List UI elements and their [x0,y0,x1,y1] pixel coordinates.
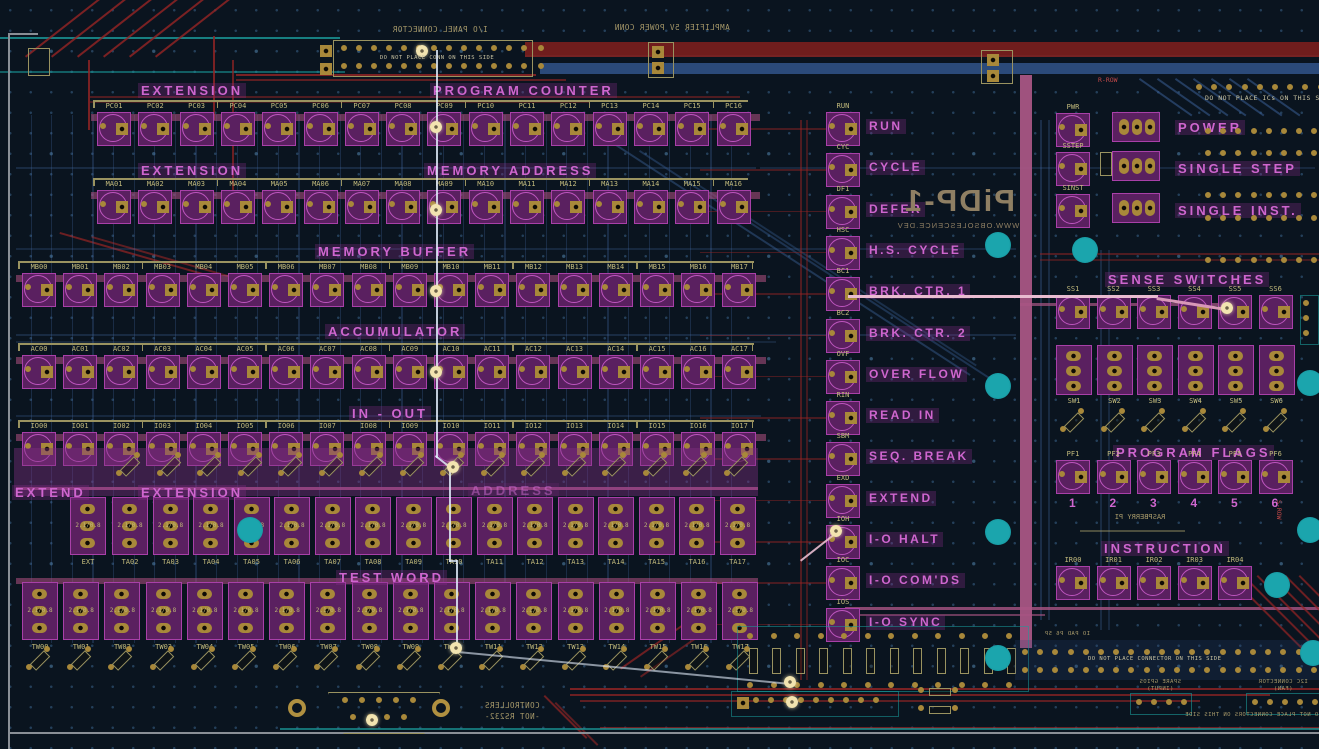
pin-pad[interactable] [1267,699,1273,705]
pin-pad[interactable] [1205,215,1211,221]
pin-pad[interactable] [1311,128,1317,134]
copper-trace[interactable] [700,624,826,626]
pcb-editor-canvas[interactable]: PC01PC02PC03PC04PC05PC06PC07PC08PC09PC10… [0,0,1319,749]
copper-trace[interactable] [700,293,826,295]
pin-pad[interactable] [1220,667,1226,673]
copper-trace[interactable] [16,167,756,169]
highlighted-pad[interactable] [430,121,442,133]
plated-hole[interactable] [1297,370,1319,396]
pin-pad[interactable] [813,697,819,703]
pin-pad[interactable] [841,682,847,688]
switch-pad[interactable] [365,538,380,548]
led-pad[interactable] [307,201,313,207]
switch-pad[interactable] [1269,381,1284,391]
led-pad[interactable] [41,366,53,378]
switch-pad[interactable] [568,504,583,514]
pin-pad[interactable] [1297,699,1303,705]
led-pad[interactable] [637,123,643,129]
led-pad[interactable] [845,123,857,135]
led-pad[interactable] [1059,577,1065,583]
switch-pad[interactable] [1119,158,1129,174]
copper-trace[interactable] [525,55,1319,57]
switch-pad[interactable] [1066,381,1081,391]
led-pad[interactable] [653,201,665,213]
switch-pad[interactable] [650,623,665,633]
led-pad[interactable] [845,453,857,465]
led-pad[interactable] [412,284,424,296]
pin-pad[interactable] [771,633,777,639]
pin-pad[interactable] [1250,667,1256,673]
pin-pad[interactable] [818,633,824,639]
switch-pad[interactable] [320,623,335,633]
led-pad[interactable] [1181,577,1187,583]
led-pad[interactable] [1181,471,1187,477]
led-pad[interactable] [190,284,196,290]
pin-pad[interactable] [1311,192,1317,198]
copper-trace[interactable] [8,732,1319,734]
highlighted-pad[interactable] [430,285,442,297]
led-pad[interactable] [412,366,424,378]
led-pad[interactable] [405,123,417,135]
switch-pad[interactable] [73,589,88,599]
switch-pad[interactable] [325,538,340,548]
led-pad[interactable] [446,123,458,135]
copper-trace[interactable] [51,0,147,58]
led-pad[interactable] [1140,306,1146,312]
led-pad[interactable] [720,201,726,207]
switch-pad[interactable] [197,589,212,599]
copper-trace[interactable] [700,417,826,419]
pin-pad[interactable] [393,697,399,703]
led-pad[interactable] [206,366,218,378]
pin-pad[interactable] [737,697,749,709]
pin-pad[interactable] [410,697,416,703]
led-pad[interactable] [247,366,259,378]
plated-hole[interactable] [237,517,263,543]
pin-pad[interactable] [1287,84,1293,90]
copper-trace[interactable] [845,607,1319,610]
pin-pad[interactable] [342,697,348,703]
pin-pad[interactable] [1220,150,1226,156]
copper-trace[interactable] [848,295,1158,298]
switch-pad[interactable] [1107,351,1122,361]
pin-pad[interactable] [768,697,774,703]
led-pad[interactable] [446,201,458,213]
pin-pad[interactable] [918,687,924,693]
pin-pad[interactable] [987,54,999,66]
pin-pad[interactable] [747,633,753,639]
switch-pad[interactable] [1188,351,1203,361]
switch-pad[interactable] [1269,366,1284,376]
connector-outline[interactable] [731,691,899,717]
highlighted-pad[interactable] [784,676,796,688]
led-pad[interactable] [700,366,712,378]
plated-hole[interactable] [1297,517,1319,543]
led-pad[interactable] [157,123,169,135]
pin-pad[interactable] [982,682,988,688]
led-pad[interactable] [845,247,857,259]
pin-pad[interactable] [1235,667,1241,673]
switch-pad[interactable] [80,538,95,548]
led-pad[interactable] [288,366,300,378]
pin-pad[interactable] [1257,84,1263,90]
switch-pad[interactable] [485,589,500,599]
switch-pad[interactable] [1145,200,1155,216]
switch-pad[interactable] [1119,119,1129,135]
led-pad[interactable] [1075,163,1087,175]
led-pad[interactable] [183,123,189,129]
led-pad[interactable] [1221,471,1227,477]
pin-pad[interactable] [1281,257,1287,263]
led-pad[interactable] [307,123,313,129]
led-pad[interactable] [329,366,341,378]
led-pad[interactable] [829,123,835,129]
pin-pad[interactable] [506,45,512,51]
led-pad[interactable] [1075,471,1087,483]
pin-pad[interactable] [384,714,390,720]
switch-pad[interactable] [114,589,129,599]
led-pad[interactable] [82,284,94,296]
led-pad[interactable] [240,201,252,213]
led-pad[interactable] [653,123,665,135]
switch-pad[interactable] [568,538,583,548]
pin-pad[interactable] [1174,649,1180,655]
led-pad[interactable] [240,123,252,135]
switch-pad[interactable] [689,504,704,514]
led-pad[interactable] [596,201,602,207]
switch-pad[interactable] [73,623,88,633]
led-pad[interactable] [529,201,541,213]
switch-pad[interactable] [1145,119,1155,135]
led-pad[interactable] [1100,306,1106,312]
pin-pad[interactable] [1166,699,1172,705]
led-pad[interactable] [348,201,354,207]
led-pad[interactable] [100,123,106,129]
pin-pad[interactable] [987,70,999,82]
pin-pad[interactable] [798,697,804,703]
switch-pad[interactable] [80,504,95,514]
led-pad[interactable] [596,123,602,129]
plated-hole[interactable] [1264,572,1290,598]
pin-pad[interactable] [1281,128,1287,134]
highlighted-pad[interactable] [1221,302,1233,314]
led-pad[interactable] [513,201,519,207]
pin-pad[interactable] [1296,667,1302,673]
led-pad[interactable] [602,284,608,290]
led-pad[interactable] [659,284,671,296]
pin-pad[interactable] [1251,257,1257,263]
switch-pad[interactable] [284,538,299,548]
led-pad[interactable] [396,366,402,372]
led-pad[interactable] [577,366,589,378]
led-pad[interactable] [355,284,361,290]
pin-pad[interactable] [888,633,894,639]
led-pad[interactable] [1116,306,1128,318]
switch-pad[interactable] [406,538,421,548]
pin-pad[interactable] [912,682,918,688]
pin-pad[interactable] [1251,192,1257,198]
pin-pad[interactable] [652,62,664,74]
led-pad[interactable] [1059,471,1065,477]
switch-pad[interactable] [1228,351,1243,361]
switch-pad[interactable] [403,623,418,633]
switch-pad[interactable] [362,589,377,599]
pin-pad[interactable] [1205,257,1211,263]
pin-pad[interactable] [341,63,347,69]
pin-pad[interactable] [371,45,377,51]
pin-pad[interactable] [1296,192,1302,198]
led-pad[interactable] [123,284,135,296]
pin-pad[interactable] [1296,257,1302,263]
pin-pad[interactable] [818,682,824,688]
led-pad[interactable] [1100,471,1106,477]
pin-pad[interactable] [1303,300,1309,306]
led-pad[interactable] [1075,306,1087,318]
pin-pad[interactable] [1226,84,1232,90]
led-pad[interactable] [618,366,630,378]
led-pad[interactable] [488,123,500,135]
switch-pad[interactable] [691,623,706,633]
led-pad[interactable] [1075,205,1087,217]
copper-trace[interactable] [8,33,10,749]
led-pad[interactable] [396,284,402,290]
copper-trace[interactable] [525,42,1319,55]
switch-pad[interactable] [568,589,583,599]
led-pad[interactable] [348,123,354,129]
pin-pad[interactable] [1068,649,1074,655]
pin-pad[interactable] [1205,150,1211,156]
led-pad[interactable] [845,330,857,342]
led-pad[interactable] [371,366,383,378]
pin-pad[interactable] [873,697,879,703]
switch-pad[interactable] [527,504,542,514]
pin-pad[interactable] [1251,215,1257,221]
pin-pad[interactable] [476,45,482,51]
led-pad[interactable] [1278,306,1290,318]
pin-pad[interactable] [1181,699,1187,705]
pin-pad[interactable] [320,45,332,57]
pin-pad[interactable] [1205,128,1211,134]
highlighted-pad[interactable] [430,366,442,378]
switch-pad[interactable] [197,623,212,633]
highlighted-pad[interactable] [786,696,798,708]
pin-pad[interactable] [865,682,871,688]
pin-pad[interactable] [1266,150,1272,156]
pin-pad[interactable] [1144,649,1150,655]
pin-pad[interactable] [753,697,759,703]
switch-pad[interactable] [406,504,421,514]
pin-pad[interactable] [1311,667,1317,673]
switch-pad[interactable] [1119,200,1129,216]
pin-pad[interactable] [1022,649,1028,655]
pin-pad[interactable] [828,697,834,703]
led-pad[interactable] [694,201,706,213]
pin-pad[interactable] [1311,257,1317,263]
pin-pad[interactable] [506,63,512,69]
led-pad[interactable] [329,284,341,296]
switch-pad[interactable] [284,504,299,514]
led-pad[interactable] [845,577,857,589]
switch-pad[interactable] [1228,366,1243,376]
switch-pad[interactable] [1147,366,1162,376]
pin-pad[interactable] [476,63,482,69]
switch-pad[interactable] [1066,351,1081,361]
pin-pad[interactable] [1251,128,1257,134]
switch-pad[interactable] [1147,351,1162,361]
led-pad[interactable] [1075,577,1087,589]
led-pad[interactable] [845,206,857,218]
switch-pad[interactable] [1066,366,1081,376]
led-pad[interactable] [1237,306,1249,318]
led-pad[interactable] [149,366,155,372]
pin-pad[interactable] [401,63,407,69]
switch-pad[interactable] [730,538,745,548]
led-pad[interactable] [577,284,589,296]
switch-pad[interactable] [609,623,624,633]
pin-pad[interactable] [461,63,467,69]
switch-pad[interactable] [203,538,218,548]
switch-pad[interactable] [691,589,706,599]
pin-pad[interactable] [1303,315,1309,321]
highlighted-pad[interactable] [430,204,442,216]
plated-hole[interactable] [985,645,1011,671]
pin-pad[interactable] [1006,633,1012,639]
pin-pad[interactable] [1235,649,1241,655]
copper-trace[interactable] [155,0,251,58]
led-pad[interactable] [100,201,106,207]
switch-pad[interactable] [320,589,335,599]
led-pad[interactable] [741,366,753,378]
copper-trace[interactable] [806,120,808,680]
led-pad[interactable] [845,164,857,176]
led-pad[interactable] [25,366,31,372]
pin-pad[interactable] [356,63,362,69]
pin-pad[interactable] [1006,682,1012,688]
led-pad[interactable] [1059,124,1065,130]
switch-pad[interactable] [122,504,137,514]
led-pad[interactable] [82,366,94,378]
led-pad[interactable] [1197,471,1209,483]
led-pad[interactable] [643,366,649,372]
led-pad[interactable] [529,123,541,135]
switch-pad[interactable] [238,589,253,599]
led-pad[interactable] [1116,471,1128,483]
led-pad[interactable] [513,123,519,129]
pin-pad[interactable] [386,63,392,69]
led-pad[interactable] [494,366,506,378]
led-pad[interactable] [231,284,237,290]
pin-pad[interactable] [1098,649,1104,655]
plated-hole[interactable] [1072,237,1098,263]
pin-pad[interactable] [1282,699,1288,705]
switch-pad[interactable] [649,538,664,548]
led-pad[interactable] [199,201,211,213]
pin-pad[interactable] [1022,667,1028,673]
pin-pad[interactable] [1136,699,1142,705]
switch-pad[interactable] [279,623,294,633]
led-pad[interactable] [720,123,726,129]
led-pad[interactable] [1059,306,1065,312]
pin-pad[interactable] [841,633,847,639]
led-pad[interactable] [741,284,753,296]
switch-pad[interactable] [238,623,253,633]
pin-pad[interactable] [1266,128,1272,134]
led-pad[interactable] [845,536,857,548]
copper-trace[interactable] [700,169,826,171]
pin-pad[interactable] [1068,667,1074,673]
pin-pad[interactable] [1311,150,1317,156]
pin-pad[interactable] [1220,257,1226,263]
pin-pad[interactable] [652,46,664,58]
pin-pad[interactable] [320,63,332,75]
pin-pad[interactable] [952,705,958,711]
pin-pad[interactable] [1296,128,1302,134]
plated-hole[interactable] [985,232,1011,258]
pin-pad[interactable] [1296,215,1302,221]
pin-pad[interactable] [1098,667,1104,673]
pin-pad[interactable] [1151,699,1157,705]
led-pad[interactable] [694,123,706,135]
switch-pad[interactable] [1188,366,1203,376]
pin-pad[interactable] [794,633,800,639]
switch-pad[interactable] [163,504,178,514]
led-pad[interactable] [405,201,417,213]
led-pad[interactable] [829,495,835,501]
switch-pad[interactable] [365,504,380,514]
led-pad[interactable] [281,201,293,213]
switch-pad[interactable] [279,589,294,599]
copper-trace[interactable] [436,50,438,458]
switch-pad[interactable] [1132,158,1142,174]
pin-pad[interactable] [1250,649,1256,655]
led-pad[interactable] [371,284,383,296]
copper-trace[interactable] [8,33,38,35]
pin-pad[interactable] [356,45,362,51]
copper-trace[interactable] [700,252,826,254]
pin-pad[interactable] [1281,215,1287,221]
led-pad[interactable] [281,123,293,135]
pin-pad[interactable] [1311,215,1317,221]
switch-pad[interactable] [650,589,665,599]
led-pad[interactable] [829,330,835,336]
pin-pad[interactable] [1083,649,1089,655]
switch-pad[interactable] [689,538,704,548]
pin-pad[interactable] [521,45,527,51]
switch-pad[interactable] [325,504,340,514]
pin-pad[interactable] [1211,84,1217,90]
pin-pad[interactable] [1220,649,1226,655]
switch-pad[interactable] [608,504,623,514]
pin-pad[interactable] [1174,667,1180,673]
plated-hole[interactable] [985,519,1011,545]
led-pad[interactable] [224,123,230,129]
led-pad[interactable] [199,123,211,135]
led-pad[interactable] [165,366,177,378]
pin-pad[interactable] [1159,649,1165,655]
switch-pad[interactable] [122,538,137,548]
led-pad[interactable] [659,366,671,378]
plated-hole[interactable] [1300,640,1319,666]
pin-pad[interactable] [1296,150,1302,156]
pin-pad[interactable] [1266,257,1272,263]
led-pad[interactable] [323,201,335,213]
switch-pad[interactable] [485,623,500,633]
pin-pad[interactable] [1272,84,1278,90]
pin-pad[interactable] [747,682,753,688]
led-pad[interactable] [41,284,53,296]
pin-pad[interactable] [918,705,924,711]
led-pad[interactable] [116,123,128,135]
